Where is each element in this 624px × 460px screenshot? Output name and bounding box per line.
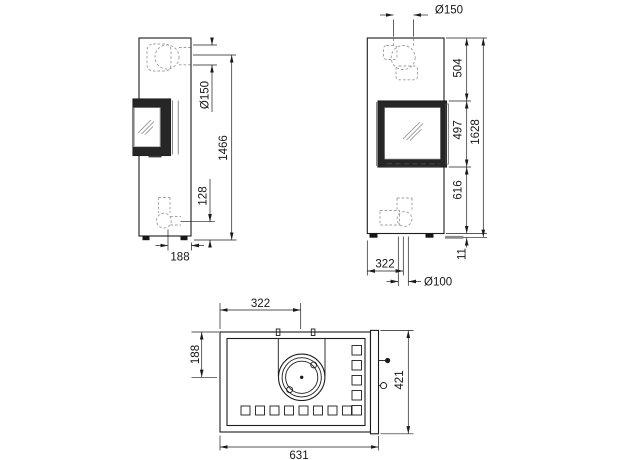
dim-top-flue-offset-rear: 188 [190,345,202,364]
side-door-glass [135,108,160,147]
technical-drawing-page: Ø150 1466 128 188 [0,0,624,460]
dim-side-air-inlet-height: 128 [198,186,210,205]
side-view: Ø150 1466 128 188 [133,38,237,264]
top-body-outline [220,332,371,432]
side-foot-front [143,236,150,240]
side-foot-rear [181,236,188,240]
dim-front-foot-height: 11 [457,248,469,260]
top-view: 322 188 421 631 [190,298,413,460]
top-door-handle [379,358,391,363]
dim-front-door-to-base: 616 [453,180,465,199]
top-flue-collar [279,354,325,400]
front-view: Ø150 504 497 1628 616 11 322 [367,5,487,289]
dim-front-flue-diameter: Ø150 [435,5,463,17]
dim-side-air-inlet-rear-offset: 188 [170,251,189,263]
front-foot-right [426,234,434,238]
dim-front-air-inlet-offset: 322 [375,259,394,271]
dim-side-flue-diameter: Ø150 [200,81,212,109]
dim-top-flue-offset-left: 322 [251,298,270,310]
front-door-glass [385,108,441,159]
dim-top-width: 631 [289,450,308,460]
top-door-latch [379,383,387,389]
front-foot-left [370,234,378,238]
stove-dimension-drawing: Ø150 1466 128 188 [0,0,624,460]
dim-front-air-inlet-diameter: Ø100 [424,277,452,289]
dim-front-total-height: 1628 [470,119,482,145]
dim-front-top-to-door: 504 [453,58,465,78]
side-door-latch [149,156,162,158]
top-front-panel [371,330,379,433]
dim-side-flue-center-height: 1466 [218,135,230,161]
dim-front-door-height: 497 [453,120,465,139]
front-door [377,101,449,167]
dim-top-depth: 421 [394,370,406,389]
